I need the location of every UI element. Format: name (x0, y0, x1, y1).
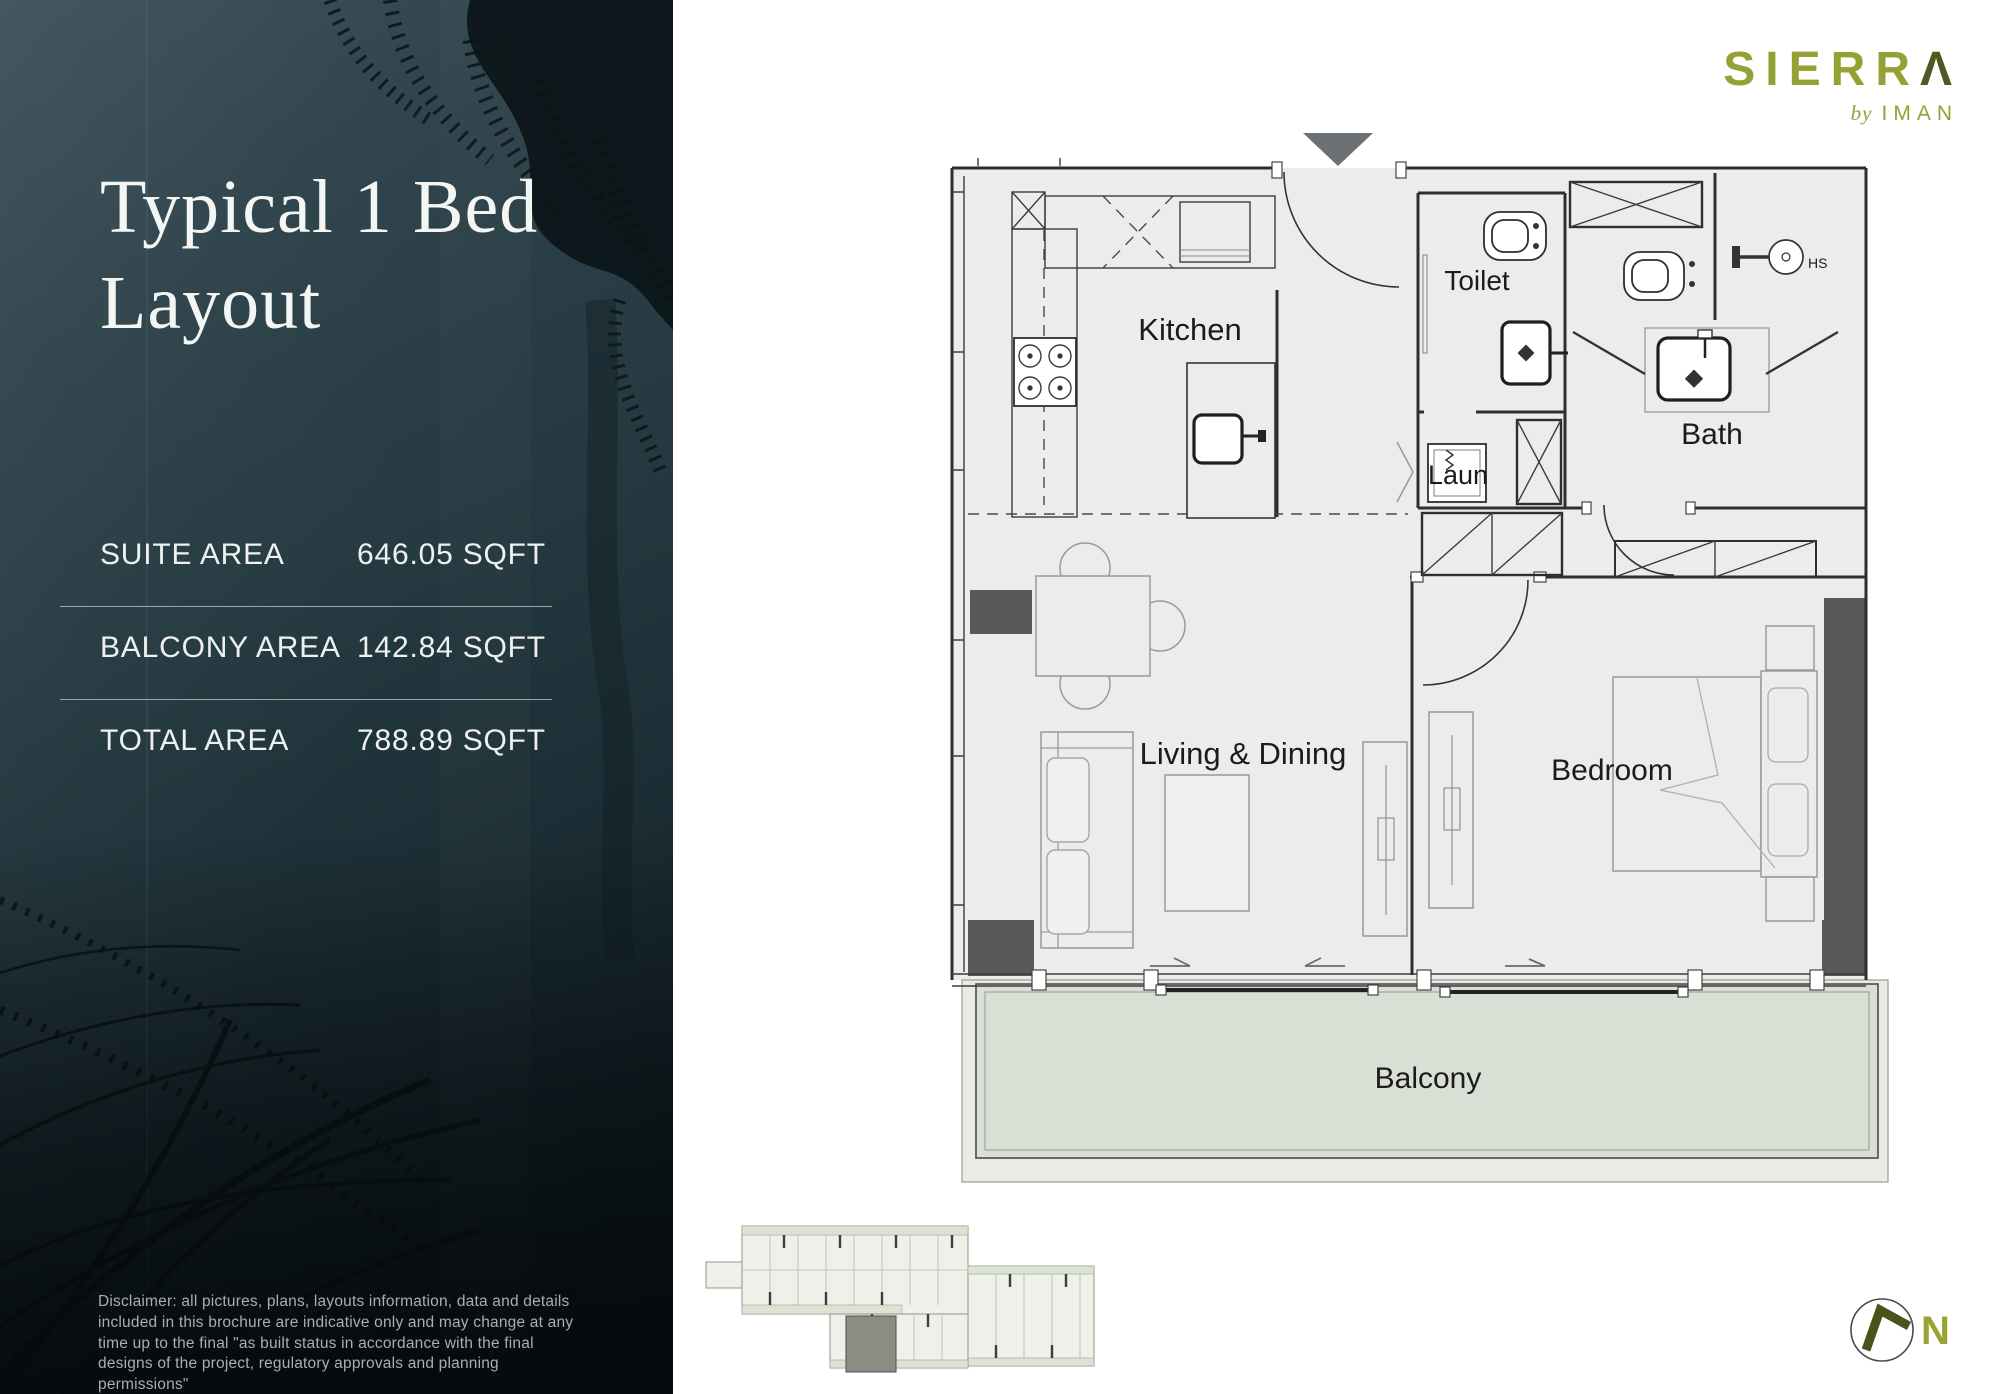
total-area-value: 788.89 SQFT (357, 724, 546, 758)
byline-by: by (1851, 101, 1873, 125)
brochure-page: Typical 1 Bed Layout SUITE AREA 646.05 S… (0, 0, 2000, 1394)
bedroom-label: Bedroom (1551, 754, 1673, 787)
key-plan-plates (706, 1226, 1094, 1368)
sierra-wordmark-prefix: SIERR (1723, 43, 1920, 96)
living-dining-label: Living & Dining (1140, 736, 1347, 771)
balcony-area-label: BALCONY AREA (100, 631, 341, 665)
north-label: N (1921, 1309, 1950, 1353)
stat-row-balcony: BALCONY AREA 142.84 SQFT (60, 631, 552, 675)
sierra-byline: byIMAN (1640, 103, 1958, 124)
page-title-line2: Layout (100, 256, 660, 352)
sierra-wordmark: SIERRΛ (1640, 46, 1962, 94)
left-panel: Typical 1 Bed Layout SUITE AREA 646.05 S… (0, 0, 673, 1394)
stat-row-total: TOTAL AREA 788.89 SQFT (60, 724, 552, 768)
divider (60, 699, 552, 700)
entrance-arrow (1303, 133, 1373, 166)
byline-iman: IMAN (1882, 102, 1959, 125)
floor-plan: Kitchen Toilet Bath Laun Living & Dining… (940, 125, 1890, 1205)
total-area-label: TOTAL AREA (100, 724, 289, 758)
shower-head-label: HS (1808, 255, 1827, 271)
building-key-plan (700, 1208, 1170, 1394)
highlighted-unit (846, 1316, 896, 1372)
area-stats: SUITE AREA 646.05 SQFT BALCONY AREA 142.… (60, 538, 552, 768)
toilet-label: Toilet (1444, 265, 1510, 296)
sierra-logo: SIERRΛ byIMAN (1640, 46, 1952, 124)
sierra-wordmark-last-letter: Λ (1920, 43, 1962, 96)
page-title: Typical 1 Bed Layout (100, 160, 660, 352)
divider (60, 606, 552, 607)
north-compass: N (1845, 1292, 1975, 1374)
kitchen-label: Kitchen (1138, 312, 1241, 347)
stat-row-suite: SUITE AREA 646.05 SQFT (60, 538, 552, 582)
bath-label: Bath (1681, 418, 1743, 451)
disclaimer-text: Disclaimer: all pictures, plans, layouts… (98, 1292, 580, 1394)
laundry-label: Laun (1428, 460, 1488, 490)
suite-area-value: 646.05 SQFT (357, 538, 546, 572)
page-title-line1: Typical 1 Bed (100, 160, 660, 256)
north-arrow-chevron (1866, 1310, 1909, 1350)
suite-area-label: SUITE AREA (100, 538, 285, 572)
balcony-label: Balcony (1375, 1062, 1482, 1095)
balcony-area-value: 142.84 SQFT (357, 631, 546, 665)
